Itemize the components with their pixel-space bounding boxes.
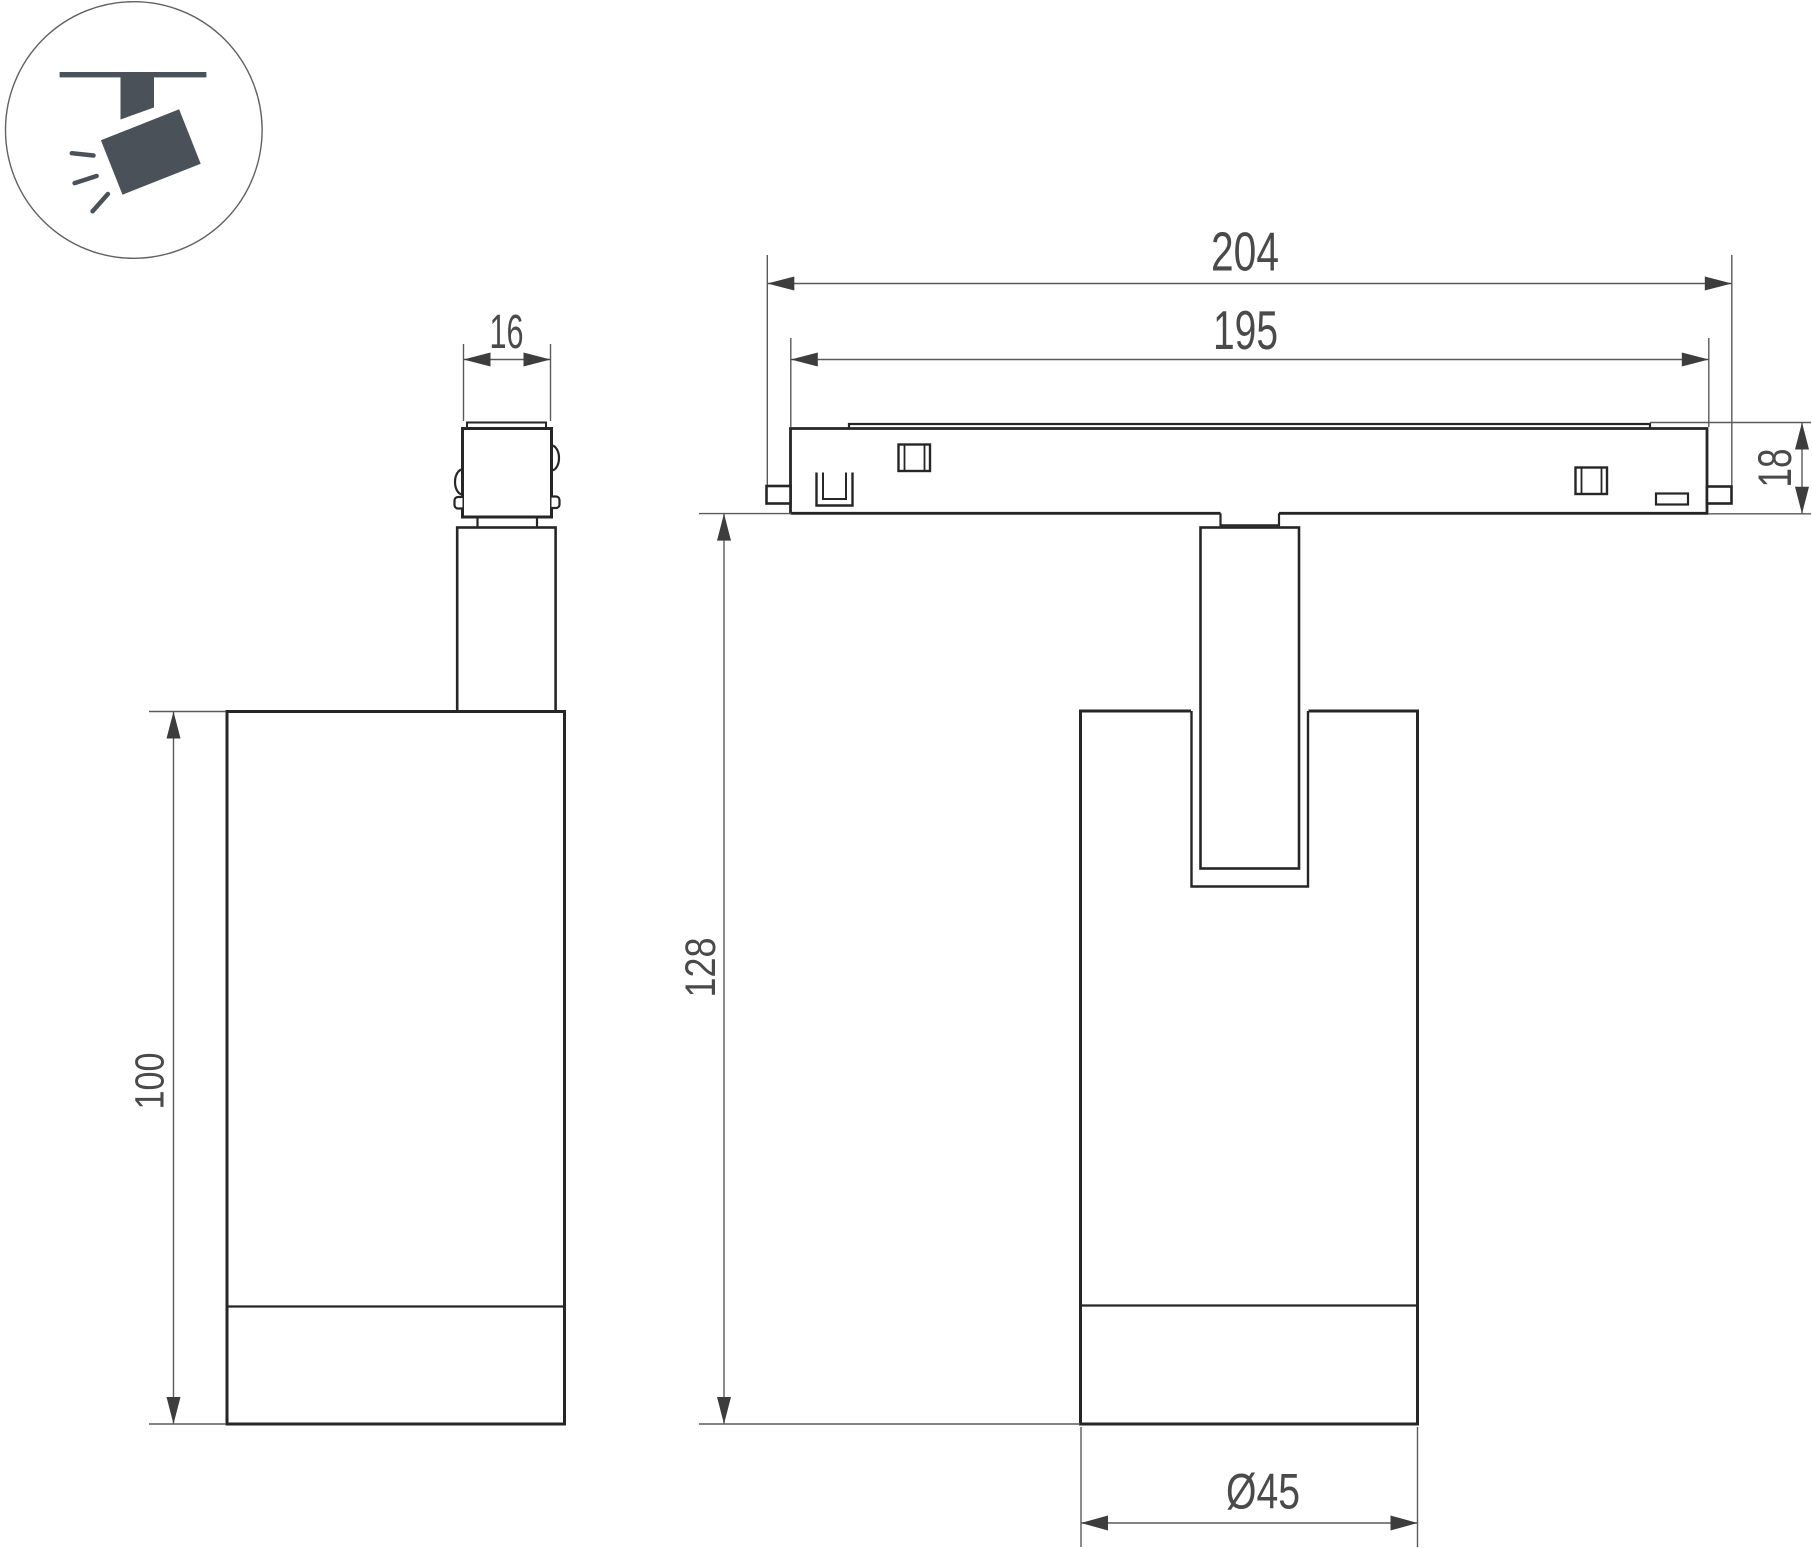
svg-text:Ø45: Ø45 [1226, 1464, 1300, 1520]
svg-text:195: 195 [1213, 299, 1278, 361]
svg-text:204: 204 [1211, 221, 1279, 283]
svg-text:100: 100 [126, 1053, 172, 1110]
svg-text:16: 16 [490, 306, 524, 359]
svg-text:128: 128 [677, 938, 725, 998]
svg-text:18: 18 [1748, 449, 1801, 488]
